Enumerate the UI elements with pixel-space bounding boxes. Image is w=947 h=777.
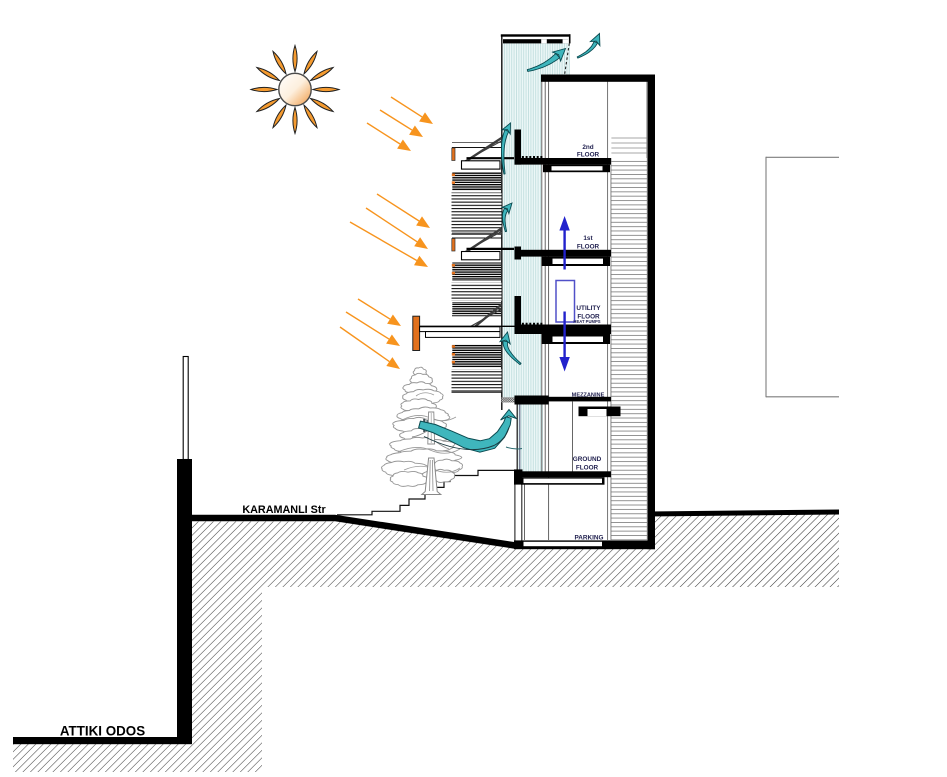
svg-text:HEAT PUMPS: HEAT PUMPS	[573, 319, 600, 324]
svg-text:FLOOR: FLOOR	[577, 243, 600, 250]
svg-text:GROUND: GROUND	[573, 456, 602, 463]
svg-text:FLOOR: FLOOR	[577, 152, 600, 159]
svg-text:UTILITY: UTILITY	[576, 305, 601, 312]
svg-text:ATTIKI ODOS: ATTIKI ODOS	[60, 724, 145, 739]
svg-text:PARKING: PARKING	[575, 535, 604, 542]
svg-text:1st: 1st	[583, 235, 593, 242]
svg-text:MEZZANINE: MEZZANINE	[572, 392, 605, 398]
svg-text:KARAMANLI Str: KARAMANLI Str	[242, 504, 326, 516]
svg-text:FLOOR: FLOOR	[576, 464, 599, 471]
svg-text:2nd: 2nd	[582, 144, 593, 151]
